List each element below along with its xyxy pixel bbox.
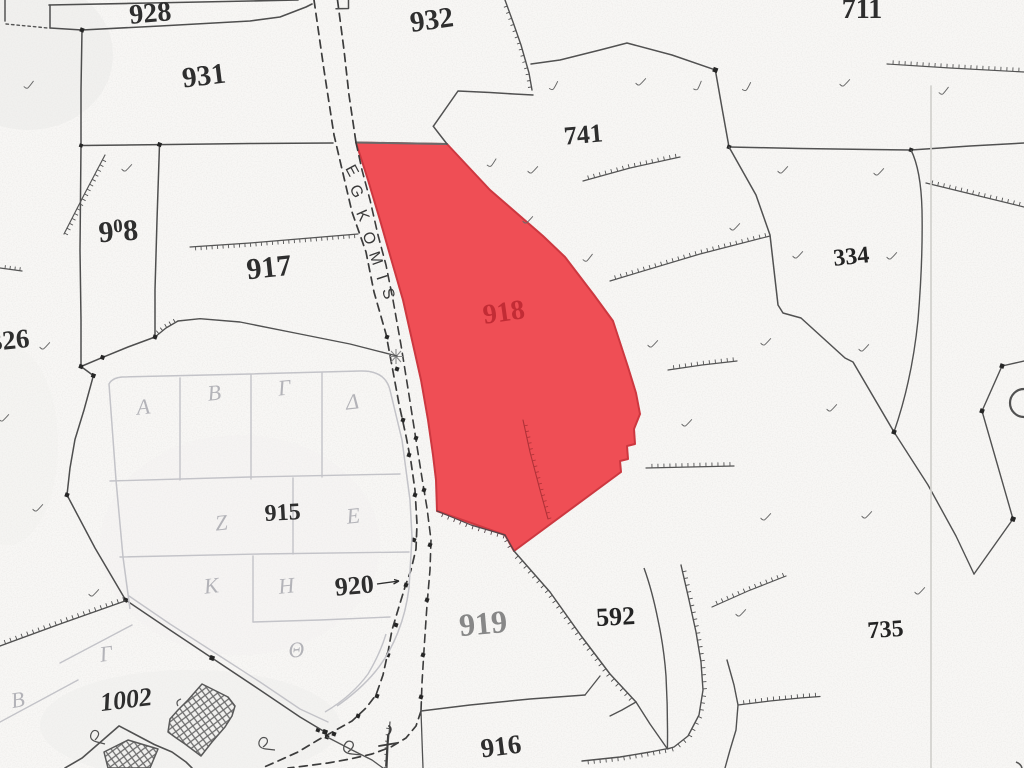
svg-text:928: 928 bbox=[128, 0, 173, 31]
svg-text:Β: Β bbox=[206, 379, 222, 405]
svg-text:Θ: Θ bbox=[287, 636, 306, 663]
svg-text:932: 932 bbox=[408, 1, 456, 39]
svg-text:326: 326 bbox=[0, 323, 31, 357]
svg-text:735: 735 bbox=[867, 616, 905, 644]
svg-text:592: 592 bbox=[595, 601, 635, 632]
svg-text:Δ: Δ bbox=[343, 388, 359, 414]
svg-text:916: 916 bbox=[479, 729, 523, 764]
svg-text:931: 931 bbox=[180, 58, 227, 95]
svg-text:920: 920 bbox=[334, 569, 375, 601]
svg-text:711: 711 bbox=[842, 0, 882, 25]
svg-text:918: 918 bbox=[481, 294, 527, 331]
svg-text:917: 917 bbox=[245, 249, 293, 287]
svg-text:919: 919 bbox=[458, 603, 509, 643]
svg-text:915: 915 bbox=[264, 499, 301, 527]
svg-text:334: 334 bbox=[832, 242, 871, 272]
svg-text:741: 741 bbox=[563, 118, 604, 150]
